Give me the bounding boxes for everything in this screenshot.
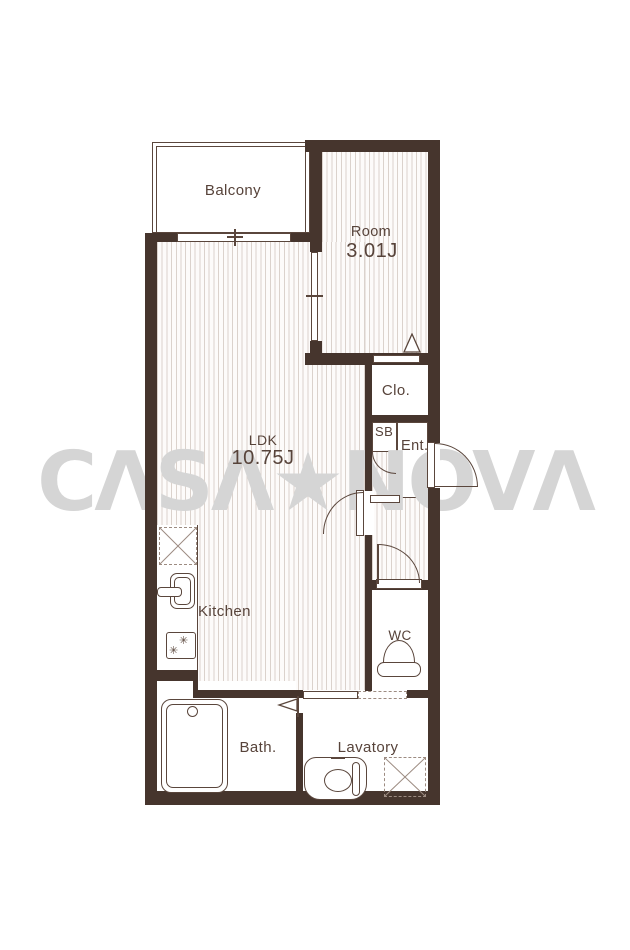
room-window-cross: [306, 295, 323, 297]
stove-burner-icon: ✳: [179, 636, 188, 647]
room-label: Room: [351, 224, 391, 240]
wall-lavatory-top-right: [407, 690, 440, 698]
wall-room-left-upper: [310, 140, 322, 252]
lavatory-sink-bowl: [324, 769, 352, 792]
bathtub-drain-icon: [187, 706, 198, 717]
wc-label: WC: [388, 628, 411, 643]
wc-door-leaf: [377, 544, 379, 584]
room-size: 3.01J: [346, 240, 397, 263]
ldk-label: LDK: [249, 432, 277, 448]
refrigerator-space: [159, 527, 197, 565]
wall-bath-divider: [296, 713, 303, 791]
entrance-label: Ent.: [401, 438, 428, 454]
lavatory-door-track: [358, 691, 407, 699]
bath-label: Bath.: [239, 739, 276, 756]
balcony-window-cross: [227, 236, 243, 238]
balcony-window-mullion: [234, 229, 236, 246]
wall-balcony-bottom-left: [145, 233, 177, 242]
wall-right-upper: [428, 140, 440, 443]
bath-folding-door-icon: [277, 696, 301, 718]
closet-label: Clo.: [382, 382, 410, 399]
entrance-step: [370, 495, 400, 503]
stove-burner-icon: ✳: [169, 646, 178, 657]
lavatory-sliding-door: [303, 691, 358, 699]
balcony-label: Balcony: [205, 182, 261, 199]
room-window: [311, 252, 318, 341]
washing-machine-space: [384, 757, 426, 797]
kitchen-faucet-icon: [157, 587, 182, 597]
ldk-size: 10.75J: [231, 447, 294, 470]
room-door-marker-icon: [403, 333, 423, 354]
toilet-base: [377, 662, 421, 677]
wall-kitchen-end: [145, 670, 198, 681]
wall-room-top: [305, 140, 440, 152]
floorplan: CΛSΛ★NOVΛ: [0, 0, 630, 950]
shoebox-label: SB: [375, 424, 393, 439]
lavatory-sink-tick: [331, 757, 345, 759]
casa-nova-watermark: CΛSΛ★NOVΛ: [37, 452, 593, 514]
lavatory-label: Lavatory: [338, 739, 399, 756]
wall-left: [145, 233, 157, 805]
wall-closet-bottom: [365, 415, 428, 422]
lavatory-faucet-icon: [352, 762, 360, 796]
kitchen-label: Kitchen: [198, 603, 251, 620]
room-sliding-door: [373, 355, 420, 363]
wall-right-lower: [428, 488, 440, 805]
